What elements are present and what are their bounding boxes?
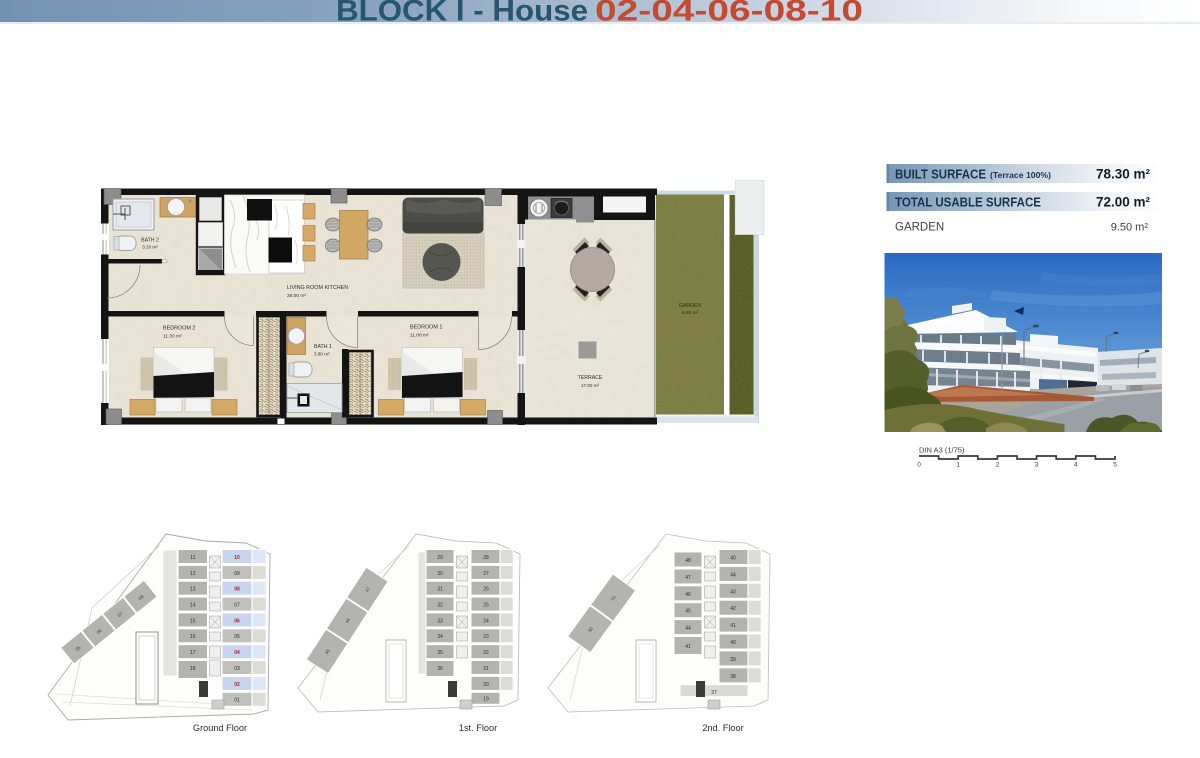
svg-text:1st. Floor: 1st. Floor <box>459 723 497 733</box>
svg-text:1: 1 <box>956 462 960 469</box>
svg-text:78.30 m²: 78.30 m² <box>1096 167 1151 182</box>
svg-text:LIVING ROOM KITCHEN: LIVING ROOM KITCHEN <box>287 285 348 291</box>
svg-text:25: 25 <box>483 603 489 609</box>
svg-text:4: 4 <box>1074 462 1078 469</box>
svg-text:24: 24 <box>483 618 489 624</box>
svg-text:21: 21 <box>483 666 489 672</box>
svg-text:19: 19 <box>483 697 489 703</box>
svg-text:10: 10 <box>234 555 240 561</box>
svg-text:13: 13 <box>190 587 196 593</box>
svg-text:12: 12 <box>190 571 196 577</box>
svg-text:72.00 m²: 72.00 m² <box>1096 195 1151 210</box>
svg-text:35: 35 <box>437 650 443 656</box>
svg-text:27: 27 <box>483 571 489 577</box>
svg-text:22: 22 <box>483 650 489 656</box>
svg-text:(Terrace 100%): (Terrace 100%) <box>990 171 1051 180</box>
svg-text:48: 48 <box>685 558 691 564</box>
svg-text:05: 05 <box>234 634 240 640</box>
svg-text:5: 5 <box>1113 462 1117 469</box>
svg-text:18: 18 <box>190 666 196 672</box>
svg-text:3: 3 <box>1035 462 1039 469</box>
svg-text:09: 09 <box>234 571 240 577</box>
svg-text:TERRACE: TERRACE <box>578 375 603 381</box>
svg-text:39: 39 <box>730 657 736 663</box>
svg-text:33: 33 <box>437 618 443 624</box>
svg-text:DIN A3 (1/75): DIN A3 (1/75) <box>919 446 965 455</box>
svg-text:23: 23 <box>483 634 489 640</box>
svg-text:47: 47 <box>685 575 691 581</box>
svg-text:11: 11 <box>190 555 195 561</box>
svg-text:06: 06 <box>234 618 240 624</box>
svg-text:17.00 m²: 17.00 m² <box>581 383 600 388</box>
svg-text:34: 34 <box>437 634 443 640</box>
svg-text:3.20 m²: 3.20 m² <box>142 245 158 250</box>
svg-text:BEDROOM 2: BEDROOM 2 <box>163 326 195 332</box>
svg-text:01: 01 <box>234 698 240 704</box>
svg-text:GARDEN: GARDEN <box>679 303 701 309</box>
svg-text:BATH 2: BATH 2 <box>141 238 159 244</box>
svg-text:GARDEN: GARDEN <box>895 222 944 234</box>
svg-text:9.50 m²: 9.50 m² <box>1111 222 1149 234</box>
svg-text:17: 17 <box>190 650 196 656</box>
svg-text:15: 15 <box>190 618 196 624</box>
svg-text:45: 45 <box>685 609 691 615</box>
svg-text:41: 41 <box>730 623 736 629</box>
svg-text:2nd. Floor: 2nd. Floor <box>702 723 743 733</box>
svg-text:29: 29 <box>437 555 443 561</box>
svg-text:31: 31 <box>437 587 443 593</box>
svg-text:28: 28 <box>483 555 489 561</box>
svg-text:BUILT SURFACE: BUILT SURFACE <box>895 167 986 182</box>
svg-text:37: 37 <box>711 690 717 696</box>
svg-text:04: 04 <box>234 650 240 656</box>
svg-text:40: 40 <box>730 556 736 562</box>
svg-text:44: 44 <box>685 626 691 632</box>
svg-text:07: 07 <box>234 603 240 609</box>
svg-text:16: 16 <box>190 634 196 640</box>
svg-text:42: 42 <box>730 606 736 612</box>
svg-text:2: 2 <box>996 462 1000 469</box>
svg-text:BEDROOM 1: BEDROOM 1 <box>410 325 442 331</box>
svg-text:26: 26 <box>483 587 489 593</box>
svg-text:20: 20 <box>483 682 489 688</box>
svg-text:BATH 1: BATH 1 <box>314 344 332 350</box>
svg-text:26.00 m²: 26.00 m² <box>287 293 306 299</box>
svg-text:0: 0 <box>917 462 921 469</box>
svg-text:14: 14 <box>190 603 196 609</box>
svg-text:08: 08 <box>234 587 240 593</box>
svg-text:41: 41 <box>685 644 691 650</box>
svg-text:40: 40 <box>730 640 736 646</box>
svg-text:02: 02 <box>234 682 240 688</box>
svg-text:11.00 m²: 11.00 m² <box>410 333 429 339</box>
svg-text:11.30 m²: 11.30 m² <box>163 334 182 340</box>
svg-text:03: 03 <box>234 666 240 672</box>
svg-text:43: 43 <box>730 589 736 595</box>
svg-text:36: 36 <box>437 666 443 672</box>
svg-text:TOTAL USABLE SURFACE: TOTAL USABLE SURFACE <box>895 195 1041 210</box>
svg-text:32: 32 <box>437 603 443 609</box>
svg-text:30: 30 <box>437 571 443 577</box>
svg-text:Ground Floor: Ground Floor <box>193 723 247 733</box>
svg-text:44: 44 <box>730 572 736 578</box>
svg-text:38: 38 <box>730 674 736 680</box>
svg-text:3.80 m²: 3.80 m² <box>314 352 330 357</box>
svg-text:46: 46 <box>685 592 691 598</box>
svg-text:9.50 m²: 9.50 m² <box>682 310 699 316</box>
svg-text:BLOCK I - House02-04-06-08-10: BLOCK I - House02-04-06-08-10 <box>336 0 863 28</box>
